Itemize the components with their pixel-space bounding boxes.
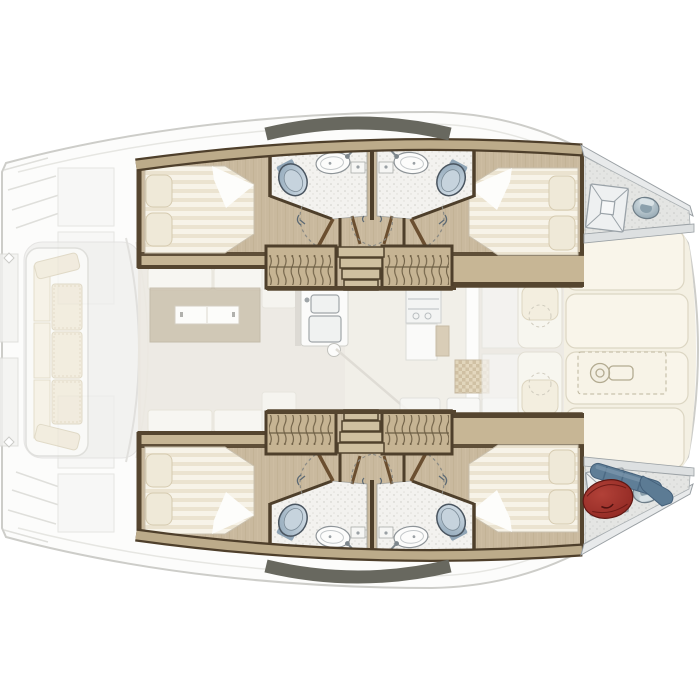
escape-hatch — [585, 184, 628, 232]
catamaran-floor-plan — [0, 0, 700, 700]
nav-panel — [482, 354, 522, 416]
nav-panel — [482, 282, 522, 348]
sink-basin — [311, 295, 339, 313]
sink-basin — [309, 316, 341, 342]
quarter-locker — [58, 474, 114, 532]
quarter-locker — [58, 168, 114, 226]
pillow — [146, 175, 172, 207]
deck-panel — [566, 294, 688, 348]
galley-counter — [406, 324, 437, 360]
forward-door-mullion — [466, 280, 479, 416]
pillow — [549, 216, 575, 250]
wardrobe-forward — [382, 246, 452, 288]
galley-cabinet — [436, 326, 449, 356]
windlass-drum-icon — [591, 364, 610, 383]
aft-cockpit — [24, 238, 148, 462]
wardrobe-aft — [266, 246, 336, 288]
floor-plan-canvas — [0, 0, 700, 700]
windlass-outline — [578, 352, 666, 394]
dining-table — [150, 288, 260, 342]
companionway-steps — [338, 247, 384, 290]
forward-cabin-double-bed — [469, 168, 578, 255]
faucet — [305, 298, 310, 303]
bow-compartment — [581, 145, 694, 243]
aft-cabin-double-bed — [145, 166, 254, 253]
galley-sink-unit — [295, 288, 348, 357]
pillow — [146, 213, 172, 246]
pillow — [549, 176, 575, 210]
